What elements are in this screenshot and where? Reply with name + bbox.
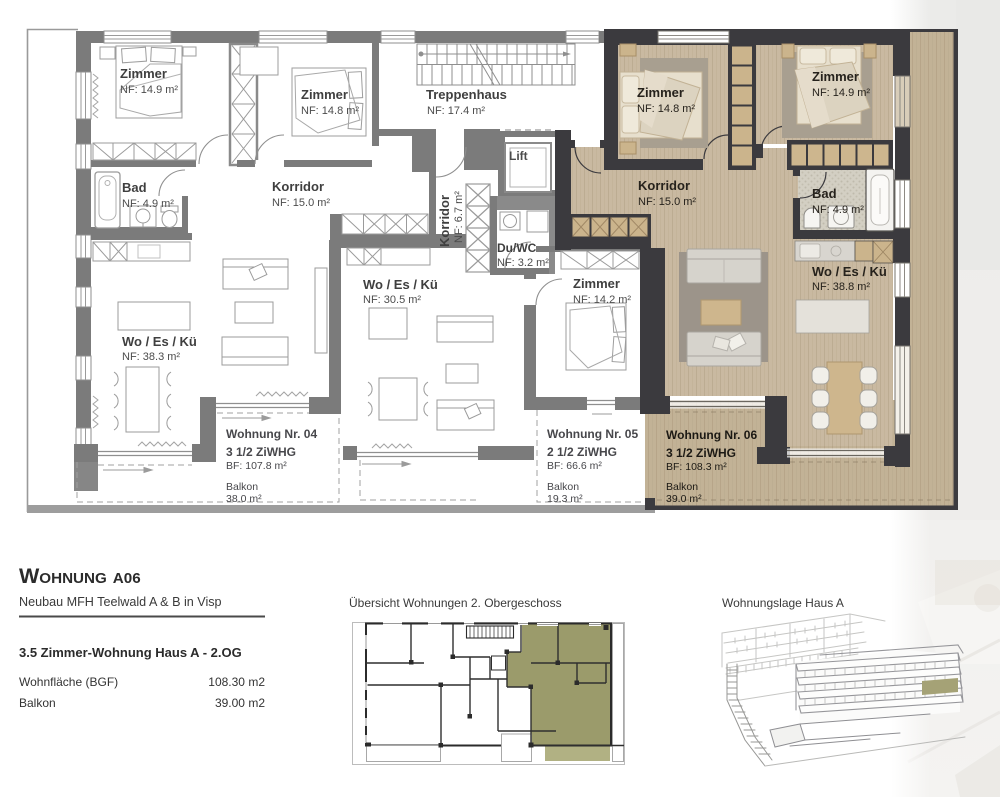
- svg-text:3.5 Zimmer-Wohnung Haus A - 2.: 3.5 Zimmer-Wohnung Haus A - 2.OG: [19, 645, 242, 660]
- svg-text:19.3 m²: 19.3 m²: [547, 493, 583, 505]
- svg-text:NF: 14.8 m²: NF: 14.8 m²: [637, 103, 695, 115]
- svg-text:Wo / Es / Kü: Wo / Es / Kü: [812, 264, 887, 279]
- svg-text:BF: 66.6 m²: BF: 66.6 m²: [547, 460, 602, 472]
- svg-text:Wohnung Nr. 06: Wohnung Nr. 06: [666, 428, 757, 442]
- svg-text:Balkon: Balkon: [666, 481, 698, 493]
- svg-text:NF: 3.2 m²: NF: 3.2 m²: [497, 257, 549, 269]
- svg-text:Wohnungslage Haus A: Wohnungslage Haus A: [722, 596, 844, 610]
- svg-text:108.30 m2: 108.30 m2: [208, 675, 265, 689]
- svg-text:39.0 m²: 39.0 m²: [666, 493, 702, 505]
- svg-text:Wohnung Nr. 05: Wohnung Nr. 05: [547, 427, 638, 441]
- svg-text:Korridor: Korridor: [638, 178, 690, 193]
- svg-text:Zimmer: Zimmer: [573, 276, 620, 291]
- svg-text:NF: 17.4 m²: NF: 17.4 m²: [427, 105, 485, 117]
- svg-text:NF: 4.9 m²: NF: 4.9 m²: [812, 204, 864, 216]
- svg-text:Übersicht Wohnungen 2. Oberges: Übersicht Wohnungen 2. Obergeschoss: [349, 596, 562, 610]
- svg-text:3 1/2 ZiWHG: 3 1/2 ZiWHG: [226, 445, 296, 459]
- svg-text:Wohnung Nr. 04: Wohnung Nr. 04: [226, 427, 317, 441]
- svg-text:Zimmer: Zimmer: [120, 66, 167, 81]
- svg-text:Lift: Lift: [509, 149, 528, 163]
- svg-text:NF: 15.0 m²: NF: 15.0 m²: [638, 196, 696, 208]
- svg-text:NF: 38.3 m²: NF: 38.3 m²: [122, 351, 180, 363]
- svg-text:38.0 m²: 38.0 m²: [226, 493, 262, 505]
- svg-text:NF: 14.9 m²: NF: 14.9 m²: [812, 87, 870, 99]
- svg-text:Du/WC: Du/WC: [497, 241, 537, 255]
- svg-text:Zimmer: Zimmer: [812, 69, 859, 84]
- svg-text:NF: 38.8 m²: NF: 38.8 m²: [812, 281, 870, 293]
- svg-text:Korridor: Korridor: [437, 195, 452, 247]
- svg-text:NF: 15.0 m²: NF: 15.0 m²: [272, 197, 330, 209]
- svg-text:Korridor: Korridor: [272, 179, 324, 194]
- svg-text:NF: 14.8 m²: NF: 14.8 m²: [301, 105, 359, 117]
- svg-text:BF: 107.8 m²: BF: 107.8 m²: [226, 460, 287, 472]
- svg-text:BF: 108.3 m²: BF: 108.3 m²: [666, 461, 727, 473]
- svg-text:Wo / Es / Kü: Wo / Es / Kü: [122, 334, 197, 349]
- svg-text:Balkon: Balkon: [226, 481, 258, 493]
- svg-text:NF: 30.5 m²: NF: 30.5 m²: [363, 294, 421, 306]
- svg-text:Balkon: Balkon: [19, 696, 56, 710]
- svg-text:Neubau MFH Teelwald A & B in V: Neubau MFH Teelwald A & B in Visp: [19, 595, 222, 609]
- svg-text:NF: 6.7 m²: NF: 6.7 m²: [453, 191, 465, 243]
- svg-text:2 1/2 ZiWHG: 2 1/2 ZiWHG: [547, 445, 617, 459]
- svg-text:Zimmer: Zimmer: [301, 87, 348, 102]
- svg-text:NF: 14.2 m²: NF: 14.2 m²: [573, 294, 631, 306]
- svg-text:39.00 m2: 39.00 m2: [215, 696, 265, 710]
- svg-text:Bad: Bad: [122, 180, 147, 195]
- svg-text:3 1/2 ZiWHG: 3 1/2 ZiWHG: [666, 446, 736, 460]
- svg-text:Bad: Bad: [812, 186, 837, 201]
- svg-text:NF: 14.9 m²: NF: 14.9 m²: [120, 84, 178, 96]
- svg-text:Wo / Es / Kü: Wo / Es / Kü: [363, 277, 438, 292]
- svg-text:Wohnfläche (BGF): Wohnfläche (BGF): [19, 675, 118, 689]
- svg-text:Treppenhaus: Treppenhaus: [426, 87, 507, 102]
- svg-text:Zimmer: Zimmer: [637, 85, 684, 100]
- svg-text:NF: 4.9 m²: NF: 4.9 m²: [122, 198, 174, 210]
- svg-text:Balkon: Balkon: [547, 481, 579, 493]
